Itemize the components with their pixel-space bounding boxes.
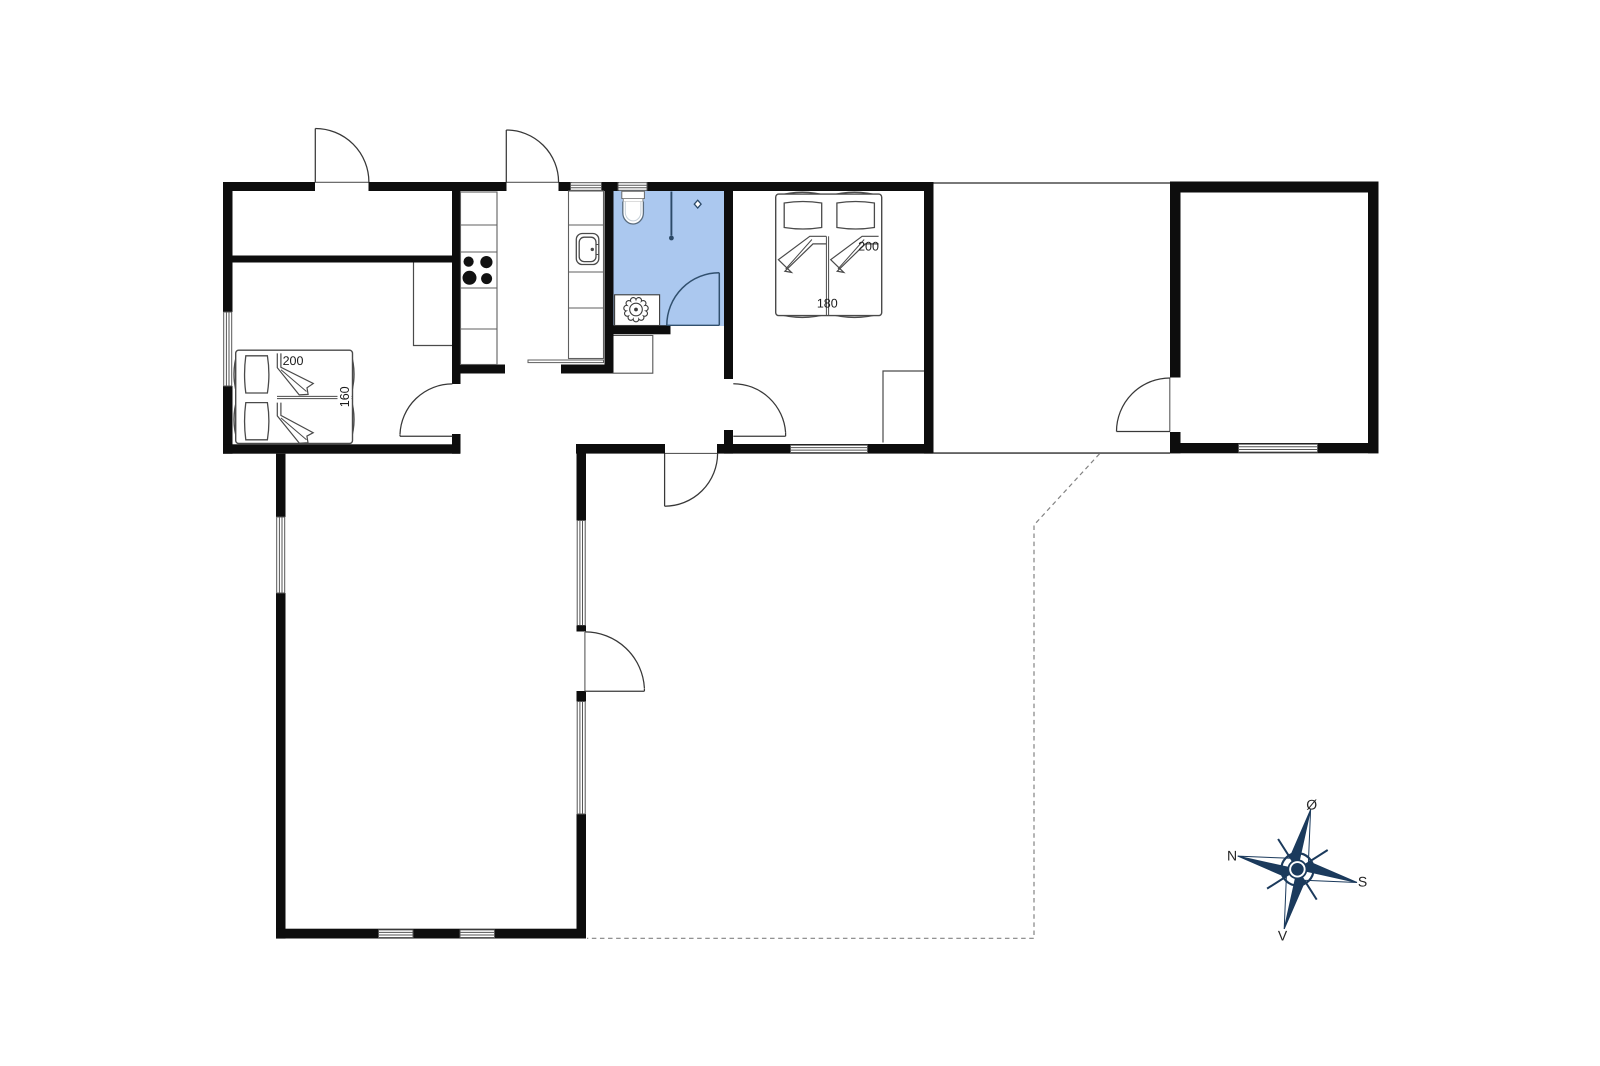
svg-text:200: 200 — [858, 239, 879, 253]
svg-text:V: V — [1278, 927, 1288, 943]
svg-text:200: 200 — [283, 354, 304, 368]
svg-text:180: 180 — [817, 296, 838, 310]
svg-text:S: S — [1358, 873, 1367, 889]
svg-text:160: 160 — [338, 386, 352, 407]
svg-text:N: N — [1227, 847, 1237, 863]
svg-text:Ø: Ø — [1306, 796, 1317, 812]
